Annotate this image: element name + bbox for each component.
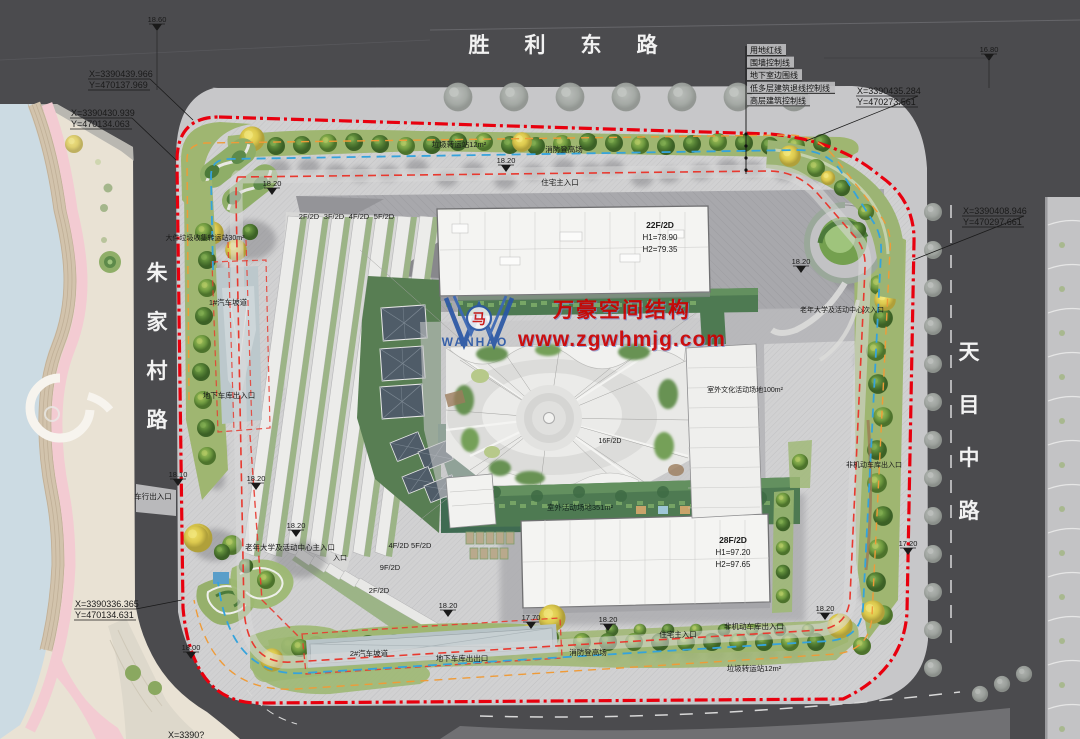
svg-text:5F/2D: 5F/2D [374,212,395,221]
svg-text:18.20: 18.20 [497,156,516,165]
svg-text:住宅主入口: 住宅主入口 [541,177,579,187]
svg-text:路: 路 [959,499,981,523]
svg-text:18.00: 18.00 [182,643,201,652]
svg-text:X=3390430.939: X=3390430.939 [71,108,135,118]
svg-text:16.80: 16.80 [980,45,999,54]
svg-text:H2=97.65: H2=97.65 [716,560,751,569]
svg-text:地下室边围线: 地下室边围线 [750,70,798,80]
svg-text:大件垃圾收集转运站30m²: 大件垃圾收集转运站30m² [166,233,246,242]
svg-text:消防登高场: 消防登高场 [545,144,583,154]
svg-text:室外活动场地351m²: 室外活动场地351m² [547,502,614,512]
svg-text:18.20: 18.20 [792,257,811,266]
svg-text:老年大学及活动中心次入口: 老年大学及活动中心次入口 [800,305,884,314]
svg-text:Y=470273.561: Y=470273.561 [857,97,916,107]
svg-text:4F/2D 5F/2D: 4F/2D 5F/2D [389,541,433,550]
svg-text:室外文化活动场地100m²: 室外文化活动场地100m² [707,385,784,394]
svg-text:高层建筑控制线: 高层建筑控制线 [750,95,806,105]
svg-text:1#汽车坡道: 1#汽车坡道 [209,297,248,307]
svg-text:路: 路 [637,33,659,57]
svg-text:2#汽车坡道: 2#汽车坡道 [350,648,389,658]
svg-text:入口: 入口 [333,554,347,562]
svg-text:地下车库出出口: 地下车库出出口 [436,653,489,663]
svg-text:18.60: 18.60 [148,15,167,24]
svg-text:围墙控制线: 围墙控制线 [750,58,790,68]
svg-text:车行出入口: 车行出入口 [134,491,172,501]
svg-text:WANHAO: WANHAO [442,335,509,349]
svg-text:老年大学及活动中心主入口: 老年大学及活动中心主入口 [245,542,335,552]
svg-text:28F/2D: 28F/2D [719,535,747,545]
svg-text:16F/2D: 16F/2D [599,438,622,445]
svg-text:非机动车库出入口: 非机动车库出入口 [846,460,902,469]
svg-text:村: 村 [147,359,168,383]
svg-text:Y=470137.969: Y=470137.969 [89,80,148,90]
svg-text:18.20: 18.20 [287,521,306,530]
svg-text:18.20: 18.20 [816,604,835,613]
svg-text:住宅主入口: 住宅主入口 [659,629,697,639]
svg-text:中: 中 [959,447,980,470]
svg-text:X=3390?: X=3390? [168,730,204,739]
svg-text:H1=97.20: H1=97.20 [716,548,751,557]
svg-text:18.20: 18.20 [247,474,266,483]
svg-text:胜: 胜 [469,34,490,57]
svg-text:朱: 朱 [147,262,169,285]
svg-text:东: 东 [581,33,602,57]
svg-text:消防登高场: 消防登高场 [569,647,607,657]
svg-text:9F/2D: 9F/2D [380,563,401,572]
svg-text:X=3390439.966: X=3390439.966 [89,69,153,79]
svg-text:Y=470134.063: Y=470134.063 [71,119,130,129]
svg-text:X=3390336.365: X=3390336.365 [75,599,139,609]
svg-text:用地红线: 用地红线 [750,45,782,55]
svg-text:低多层建筑退线控制线: 低多层建筑退线控制线 [750,83,830,93]
svg-text:家: 家 [147,310,169,334]
svg-text:万豪空间结构: 万豪空间结构 [552,298,691,322]
svg-text:2F/2D: 2F/2D [299,212,320,221]
svg-text:天: 天 [959,341,981,364]
svg-text:22F/2D: 22F/2D [646,220,674,230]
svg-text:Y=470134.631: Y=470134.631 [75,610,134,620]
svg-text:18.20: 18.20 [599,615,618,624]
svg-text:X=3390408.946: X=3390408.946 [963,206,1027,216]
svg-text:地下车库出入口: 地下车库出入口 [203,390,256,400]
svg-text:18.20: 18.20 [439,601,458,610]
svg-text:路: 路 [147,408,169,432]
svg-text:非机动车库出入口: 非机动车库出入口 [724,621,784,631]
svg-text:18.10: 18.10 [169,470,188,479]
svg-text:www.zgwhmjg.com: www.zgwhmjg.com [517,328,726,351]
svg-text:2F/2D: 2F/2D [369,586,390,595]
svg-text:Y=470297.661: Y=470297.661 [963,217,1022,227]
svg-text:利: 利 [525,34,546,57]
svg-text:17.20: 17.20 [899,539,918,548]
svg-text:X=3390435.284: X=3390435.284 [857,86,921,96]
svg-text:H1=78.90: H1=78.90 [643,233,678,242]
svg-text:马: 马 [472,311,486,327]
svg-text:垃圾转运站12m²: 垃圾转运站12m² [727,663,782,673]
svg-text:目: 目 [959,394,980,417]
svg-text:17.70: 17.70 [522,613,541,622]
svg-text:3F/2D: 3F/2D [324,212,345,221]
svg-text:垃圾转运站12m²: 垃圾转运站12m² [432,139,487,149]
svg-text:4F/2D: 4F/2D [349,212,370,221]
svg-text:H2=79.35: H2=79.35 [643,245,678,254]
svg-text:18.20: 18.20 [263,179,282,188]
